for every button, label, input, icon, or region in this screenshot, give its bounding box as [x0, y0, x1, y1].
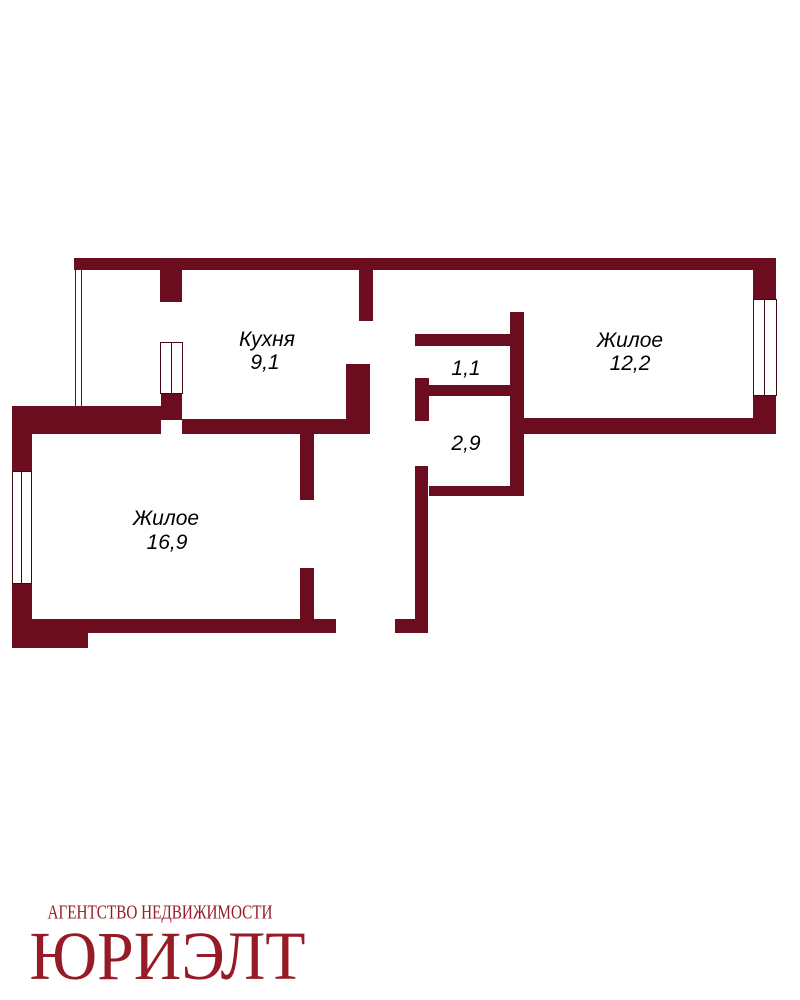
svg-text:Жилое: Жилое — [132, 507, 199, 530]
svg-text:Кухня: Кухня — [239, 328, 295, 351]
svg-text:1,1: 1,1 — [451, 357, 480, 380]
svg-text:2,9: 2,9 — [450, 432, 481, 455]
svg-text:16,9: 16,9 — [147, 531, 188, 554]
svg-text:ЮРИЭЛТ: ЮРИЭЛТ — [30, 918, 306, 994]
svg-text:9,1: 9,1 — [250, 351, 279, 374]
svg-text:Жилое: Жилое — [596, 329, 663, 352]
svg-text:12,2: 12,2 — [610, 352, 651, 375]
